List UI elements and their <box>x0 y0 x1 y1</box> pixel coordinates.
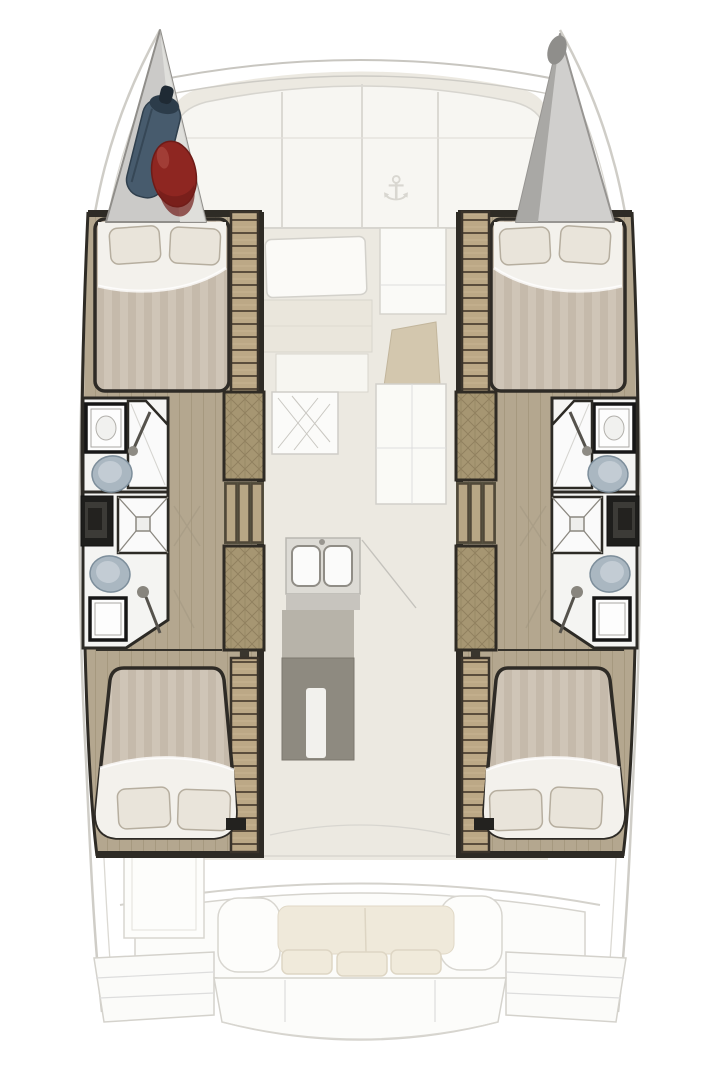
seat-cushion <box>282 950 332 974</box>
companionway-panel-top <box>224 392 264 480</box>
pillow <box>169 227 221 266</box>
companionway-panel-bottom <box>224 546 264 650</box>
sidewalk-plank-forward <box>231 212 258 398</box>
hull-interior-starboard <box>456 210 639 858</box>
floorplan-canvas: ⚓ <box>0 0 720 1080</box>
anchor-icon: ⚓ <box>381 169 411 209</box>
hull-interior-port <box>81 210 264 858</box>
pillow <box>117 787 171 830</box>
companionway <box>224 392 264 688</box>
cabin-aft <box>96 650 258 852</box>
entry-step <box>226 818 246 830</box>
galley-sink <box>286 538 360 610</box>
pillow <box>109 225 161 264</box>
transom-steps-port <box>94 952 214 1022</box>
galley-island <box>282 610 354 760</box>
cockpit-armrest-port <box>218 898 280 972</box>
companionway-step <box>252 484 262 542</box>
catamaran-floorplan: ⚓ <box>0 0 720 1080</box>
companionway-step <box>239 484 249 542</box>
swim-platform <box>214 978 506 1040</box>
seat-cushion <box>337 952 387 976</box>
cabin-forward <box>95 212 258 398</box>
pillow <box>177 789 230 831</box>
head-forward <box>86 401 168 495</box>
front-windows: ⚓ <box>176 84 544 228</box>
transom-steps-starboard <box>506 952 626 1022</box>
seat-cushion <box>391 950 441 974</box>
companionway-step <box>226 484 236 542</box>
dinette <box>262 236 372 392</box>
cockpit-bench-cushions <box>278 906 454 976</box>
